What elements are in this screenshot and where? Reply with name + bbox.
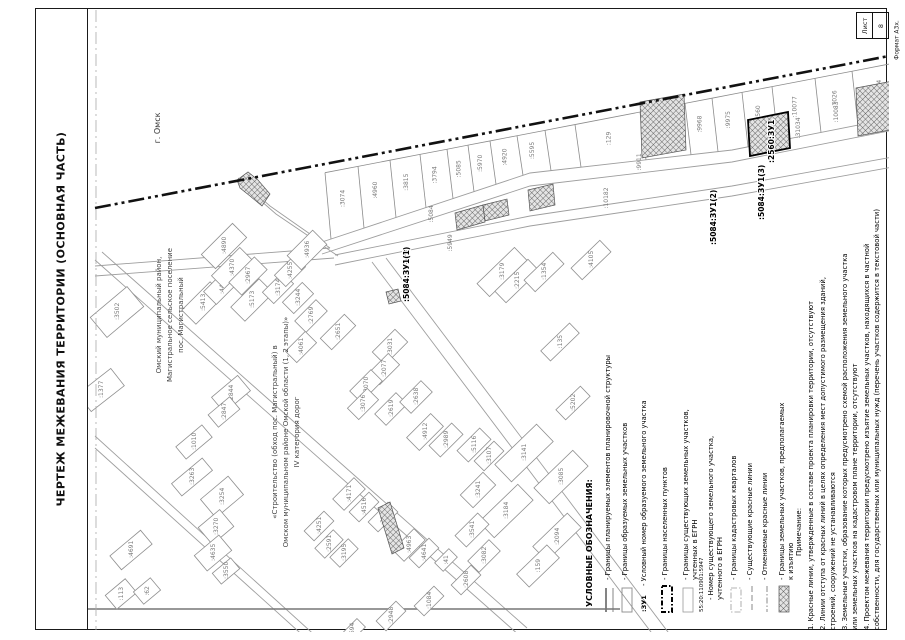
svg-text::62: :62 [144,586,151,596]
svg-text::2967: :2967 [245,267,252,284]
svg-text:строений, сооружений не устана: строений, сооружений не устанавливаются [829,472,837,630]
svg-text::1377: :1377 [98,381,105,398]
svg-text::10077: :10077 [792,96,799,117]
svg-text::31034: :31034 [795,117,802,138]
svg-text::41: :41 [443,555,450,565]
svg-text:Магистральное сельское поселен: Магистральное сельское поселение [166,248,174,382]
format-note: Формат А3х. [889,10,905,70]
svg-text::2215: :2215 [514,272,521,289]
svg-text::1354: :1354 [541,263,548,280]
svg-text::4691: :4691 [128,541,135,558]
svg-text::5085: :5085 [456,160,463,177]
svg-text::10083: :10083 [833,101,840,122]
svg-text::2638: :2638 [413,388,420,405]
svg-text::4255: :4255 [287,262,294,279]
svg-text::3815: :3815 [403,173,410,190]
svg-text:- Границы образуемых земельных: - Границы образуемых земельных участков [621,423,629,580]
svg-text::3031: :3031 [387,338,394,355]
svg-text::3270: :3270 [213,518,220,535]
svg-text::3550: :3550 [223,562,230,579]
svg-text::4171: :4171 [346,485,353,502]
svg-text::2608: :2608 [463,571,470,588]
band-layer: :3074:4960:3815:3794:5085:5970:4920:5595… [325,61,889,251]
svg-text::4370: :4370 [229,259,236,276]
svg-text:Омском муниципальном районе Ом: Омском муниципальном районе Омской облас… [282,317,290,548]
svg-text::4960: :4960 [372,181,379,198]
svg-text:- Границы существующих земельн: - Границы существующих земельных участко… [682,409,690,580]
svg-text::3195: :3195 [341,544,348,561]
svg-text::3794: :3794 [432,166,439,183]
svg-text::3076: :3076 [360,395,367,412]
svg-text:4. Проектом межевания территор: 4. Проектом межевания территории предусм… [863,244,871,630]
svg-text::129: :129 [606,132,613,146]
svg-text::10182: :10182 [603,187,610,208]
svg-text::2769: :2769 [308,307,315,324]
svg-text::5084: :5084 [428,205,435,222]
svg-text::3107: :3107 [486,447,493,464]
svg-text:- Границы планируемых элементо: - Границы планируемых элементов планиров… [604,355,612,580]
format-label: Формат А3х. [894,20,901,60]
svg-text:пос. Магистральный: пос. Магистральный [177,277,185,353]
svg-text::1694: :1694 [349,623,356,632]
svg-text::159: :159 [535,559,542,573]
svg-text::1084: :1084 [426,592,433,609]
svg-text::3244: :3244 [295,289,302,306]
svg-text::4641: :4641 [421,544,428,561]
svg-text::135: :135 [557,335,564,349]
svg-text::4061: :4061 [298,338,305,355]
drawing-sheet: ЧЕРТЕЖ МЕЖЕВАНИЯ ТЕРРИТОРИИ (ОСНОВНАЯ ЧА… [0,0,905,640]
title-column: ЧЕРТЕЖ МЕЖЕВАНИЯ ТЕРРИТОРИИ (ОСНОВНАЯ ЧА… [35,8,88,630]
svg-text::2591: :2591 [326,535,333,552]
svg-text::2651: :2651 [335,323,342,340]
svg-text::5173: :5173 [249,291,256,308]
svg-text::9975: :9975 [725,111,732,128]
svg-text:- Существующие красные линии: - Существующие красные линии [746,463,754,580]
map-svg: :3502:1377:5413:4426:4890:4370:2967:5173… [88,8,889,632]
svg-text::2847: :2847 [221,403,228,420]
svg-text::3082: :3082 [481,547,488,564]
svg-text::3241: :3241 [475,481,482,498]
svg-text:- Отменяемые красные линии: - Отменяемые красные линии [761,473,769,580]
svg-text::9968: :9968 [697,115,704,132]
svg-text:- Границы населенных пунктов: - Границы населенных пунктов [661,467,669,580]
svg-text::5084:ЗУ1(3): :5084:ЗУ1(3) [757,165,766,220]
svg-text::1010: :1010 [191,433,198,450]
svg-text:- Границы земельных участков,: - Границы земельных участков, предполага… [778,403,786,580]
svg-text::5202: :5202 [570,394,577,411]
svg-text::2948: :2948 [388,607,395,624]
svg-text::4936: :4936 [304,241,311,258]
svg-text:учтенных в ЕГРН: учтенных в ЕГРН [691,520,699,580]
svg-text:1. Красные линии, утвержденные: 1. Красные линии, утвержденные в составе… [807,301,815,630]
svg-text::3179: :3179 [499,263,506,280]
svg-text::4516: :4516 [361,498,368,515]
svg-text::ЗУ1: :ЗУ1 [640,595,648,612]
svg-text:IV категория дорог: IV категория дорог [293,396,301,467]
svg-text::4920: :4920 [502,148,509,165]
svg-text:г. Омск: г. Омск [153,112,162,143]
svg-text:УСЛОВНЫЕ ОБОЗНАЧЕНИЯ:: УСЛОВНЫЕ ОБОЗНАЧЕНИЯ: [585,479,594,607]
svg-text::5116: :5116 [471,436,478,453]
svg-text::5084:ЗУ1(1): :5084:ЗУ1(1) [402,247,411,302]
svg-text::2077: :2077 [381,360,388,377]
svg-text:учтенного в ЕГРН: учтенного в ЕГРН [716,537,724,600]
svg-text::2094: :2094 [554,528,561,545]
legend: УСЛОВНЫЕ ОБОЗНАЧЕНИЯ:- Границы планируем… [585,355,795,612]
svg-text::3263: :3263 [189,468,196,485]
svg-text:- Условный номер образуемого з: - Условный номер образуемого земельного … [640,400,648,586]
svg-text::4890: :4890 [221,237,228,254]
page-title: ЧЕРТЕЖ МЕЖЕВАНИЯ ТЕРРИТОРИИ (ОСНОВНАЯ ЧА… [55,132,68,507]
svg-text::5595: :5595 [529,142,536,159]
svg-text:3. Земельные участки, образова: 3. Земельные участки, образование которы… [841,253,849,630]
svg-text::3502: :3502 [114,303,121,320]
svg-text::2989: :2989 [443,431,450,448]
svg-text::113: :113 [118,587,125,601]
svg-text::3141: :3141 [521,444,528,461]
svg-text::3085: :3085 [558,468,565,485]
svg-text::3254: :3254 [219,488,226,505]
svg-text::3541: :3541 [469,521,476,538]
svg-text::3074: :3074 [340,190,347,207]
svg-text::5413: :5413 [200,294,207,311]
svg-text:к изъятию: к изъятию [787,542,795,580]
svg-text::2619: :2619 [388,400,395,417]
svg-text:55:20:110901:5947: 55:20:110901:5947 [699,557,705,612]
svg-text::4912: :4912 [422,423,429,440]
svg-text::4635: :4635 [210,544,217,561]
svg-text::3184: :3184 [503,502,510,519]
svg-text::4105: :4105 [588,251,595,268]
notes: Примечание:1. Красные линии, утвержденны… [795,209,881,630]
svg-text:Омский муниципальный район,: Омский муниципальный район, [155,257,163,374]
svg-text::4963: :4963 [406,536,413,553]
svg-text:- Номер существующего земельно: - Номер существующего земельного участка… [707,436,715,600]
svg-text:2. Линии отступа от красных ли: 2. Линии отступа от красных линий в целя… [819,277,827,630]
svg-text::2560:ЗУ1: :2560:ЗУ1 [767,120,776,163]
svg-text::5970: :5970 [477,155,484,172]
svg-text:собственности, для государстве: собственности, для государственных или м… [873,209,881,630]
svg-text::5949: :5949 [447,234,454,251]
svg-text:Примечание:: Примечание: [795,508,803,556]
svg-text:или земельных участков на када: или земельных участков на кадастровом пл… [851,364,859,630]
svg-text:«Строительство (обход пос. Маг: «Строительство (обход пос. Магистральный… [271,345,279,519]
svg-text:- Границы кадастровых квартало: - Границы кадастровых кварталов [730,456,738,580]
svg-text::4251: :4251 [316,517,323,534]
svg-text::5084:ЗУ1(2): :5084:ЗУ1(2) [709,190,718,245]
